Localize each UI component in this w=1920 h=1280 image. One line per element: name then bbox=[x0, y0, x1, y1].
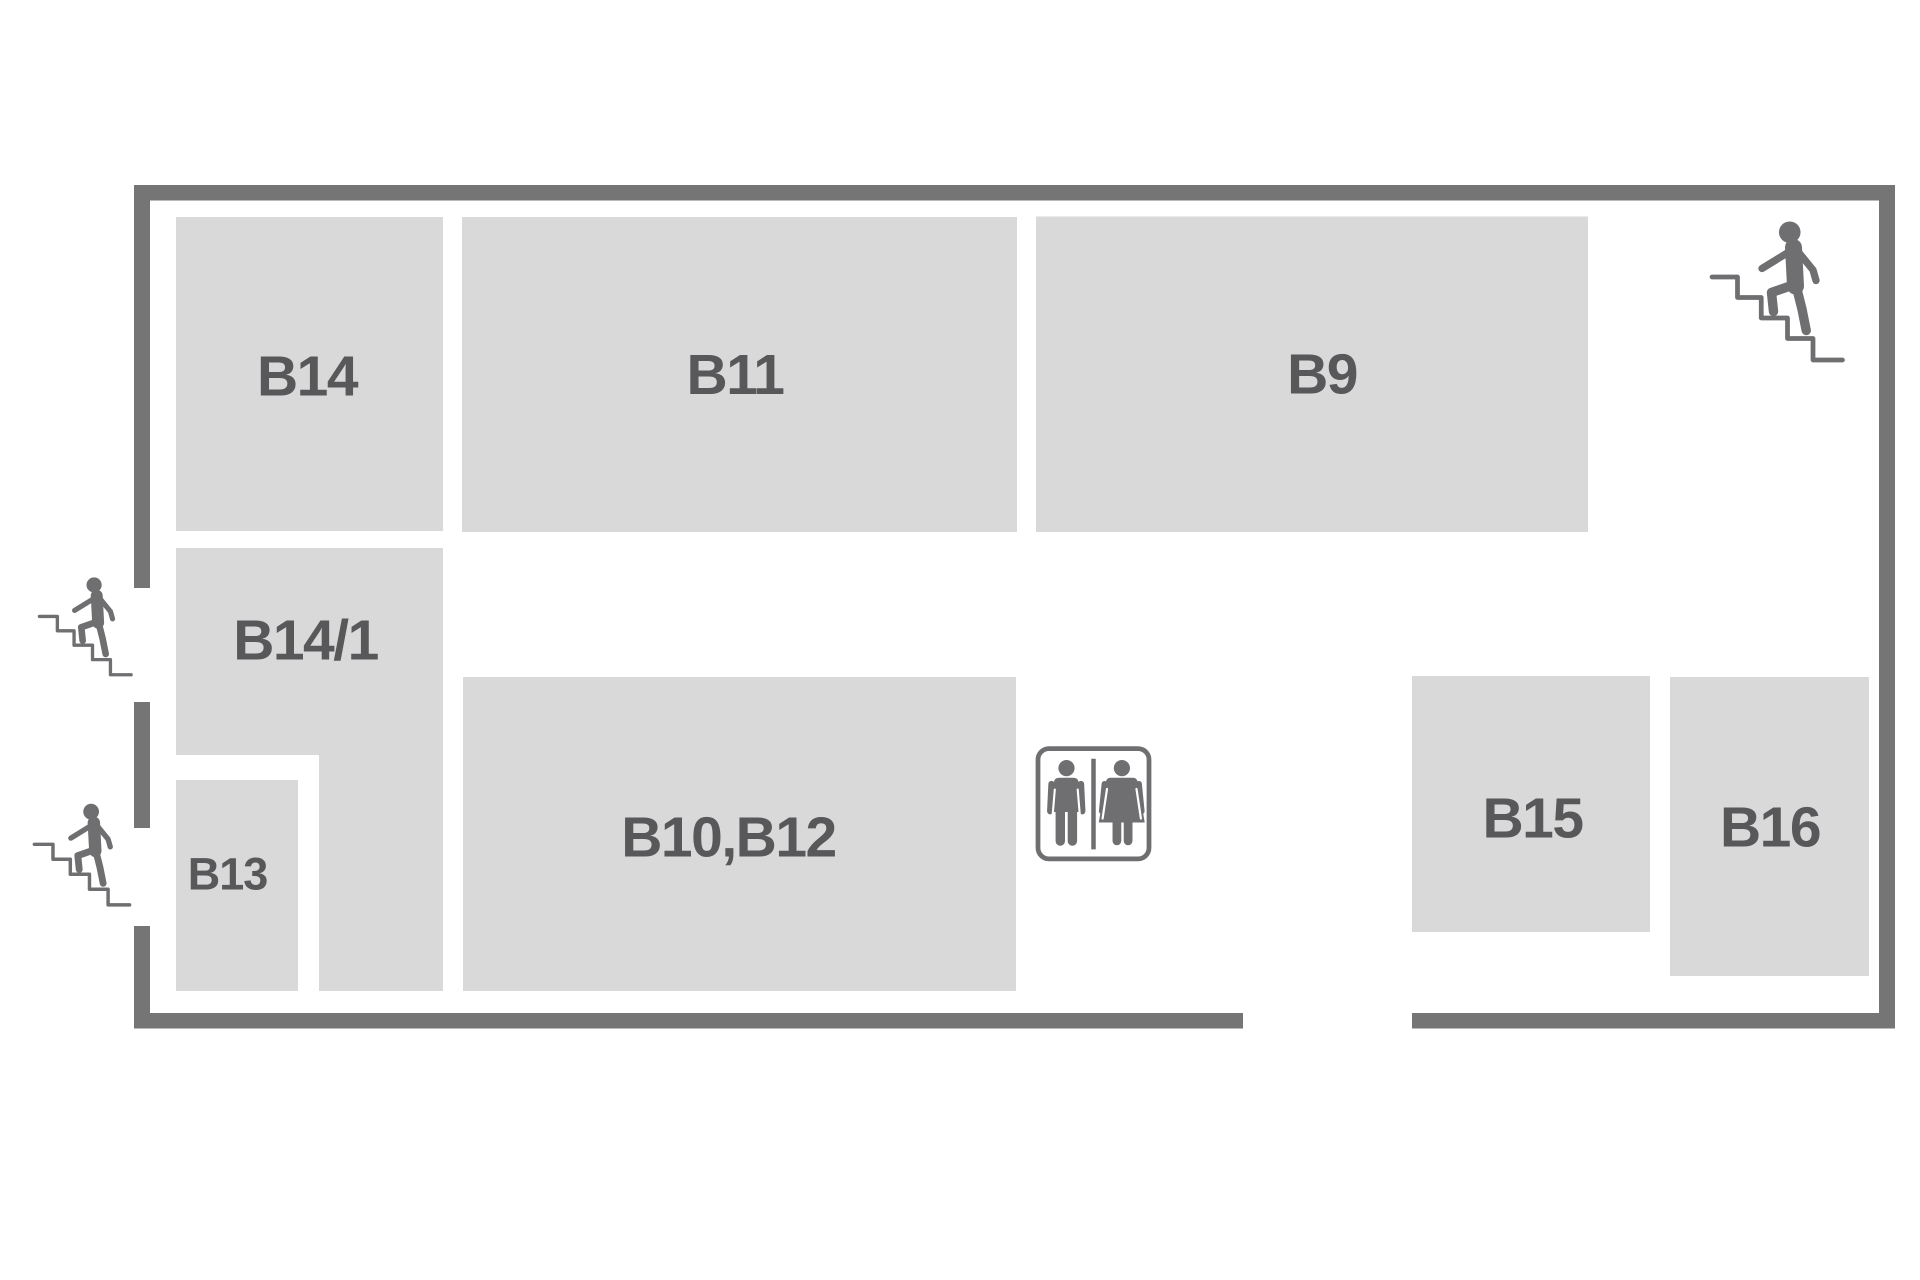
svg-text:B14: B14 bbox=[257, 345, 359, 409]
svg-text:B9: B9 bbox=[1287, 343, 1357, 407]
svg-text:B16: B16 bbox=[1720, 796, 1820, 860]
svg-text:B11: B11 bbox=[687, 343, 785, 407]
svg-text:B10,B12: B10,B12 bbox=[621, 806, 835, 870]
svg-text:B13: B13 bbox=[188, 849, 268, 900]
svg-text:B15: B15 bbox=[1482, 787, 1583, 851]
svg-text:B14/1: B14/1 bbox=[233, 609, 378, 673]
